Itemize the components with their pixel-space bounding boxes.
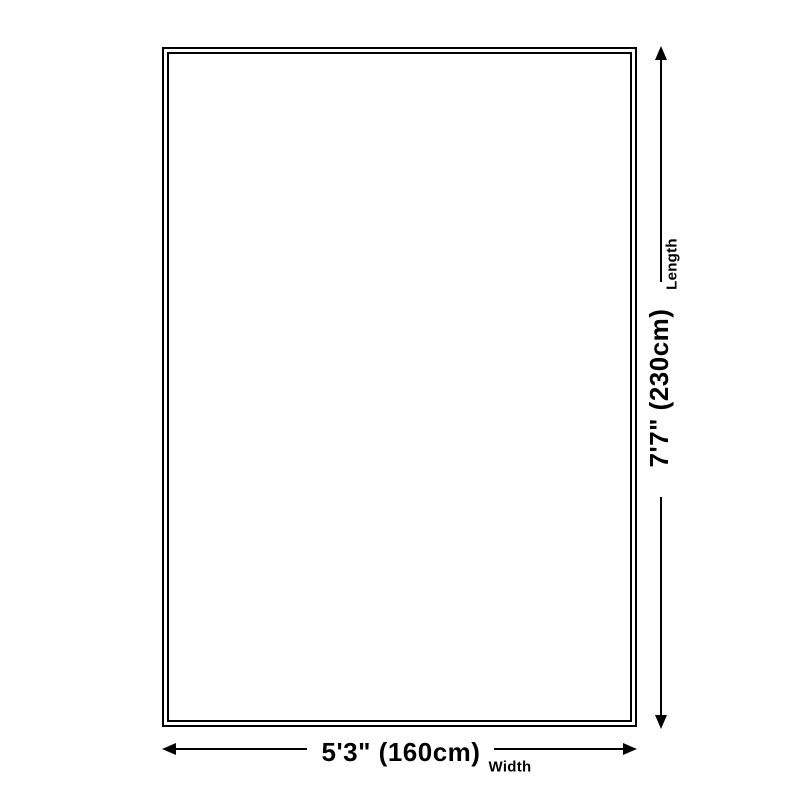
rug-inner-outline — [167, 52, 632, 722]
length-value: 7'7" (230cm) — [646, 309, 672, 468]
size-diagram: Length 7'7" (230cm) 5'3" (160cm) Width — [0, 0, 800, 800]
arrow-down-icon — [655, 715, 667, 729]
width-value: 5'3" (160cm) — [322, 739, 481, 765]
rug-outline — [162, 47, 637, 727]
width-axis-label: Width — [488, 760, 531, 775]
width-dimension-line-left — [175, 748, 307, 750]
arrow-left-icon — [162, 743, 176, 755]
length-dimension-line-top — [660, 58, 662, 282]
length-axis-label: Length — [665, 238, 680, 290]
width-dimension-line-right — [494, 748, 626, 750]
arrow-right-icon — [623, 743, 637, 755]
length-dimension-line-bottom — [660, 497, 662, 717]
